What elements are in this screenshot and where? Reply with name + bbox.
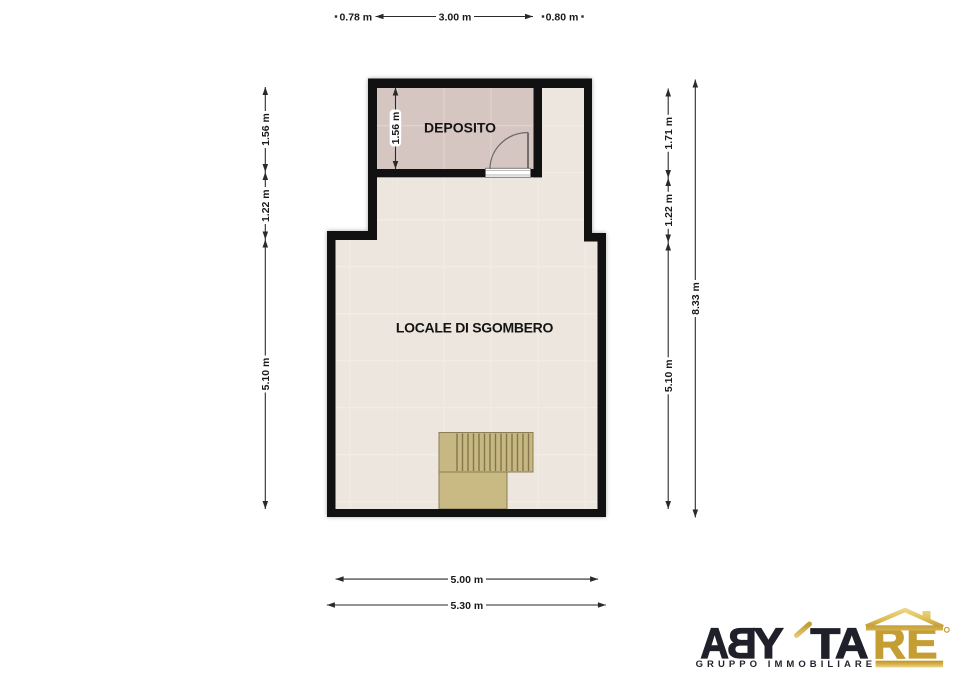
svg-text:5.10 m: 5.10 m <box>260 358 272 391</box>
svg-text:0.80 m: 0.80 m <box>546 11 579 23</box>
svg-text:5.10 m: 5.10 m <box>663 359 675 392</box>
svg-text:1.56 m: 1.56 m <box>260 113 272 146</box>
svg-text:8.33 m: 8.33 m <box>690 282 702 315</box>
svg-text:1.71 m: 1.71 m <box>663 117 675 150</box>
svg-text:LOCALE DI SGOMBERO: LOCALE DI SGOMBERO <box>396 320 554 336</box>
svg-text:1.22 m: 1.22 m <box>663 194 675 227</box>
svg-text:5.00 m: 5.00 m <box>451 574 484 586</box>
svg-text:1.56 m: 1.56 m <box>390 112 402 145</box>
svg-text:GRUPPO IMMOBILIARE: GRUPPO IMMOBILIARE <box>696 659 877 670</box>
svg-text:3.00 m: 3.00 m <box>439 11 472 23</box>
svg-text:0.78 m: 0.78 m <box>339 11 372 23</box>
svg-text:5.30 m: 5.30 m <box>451 600 484 612</box>
svg-text:DEPOSITO: DEPOSITO <box>424 120 496 136</box>
svg-text:1.22 m: 1.22 m <box>260 189 272 222</box>
